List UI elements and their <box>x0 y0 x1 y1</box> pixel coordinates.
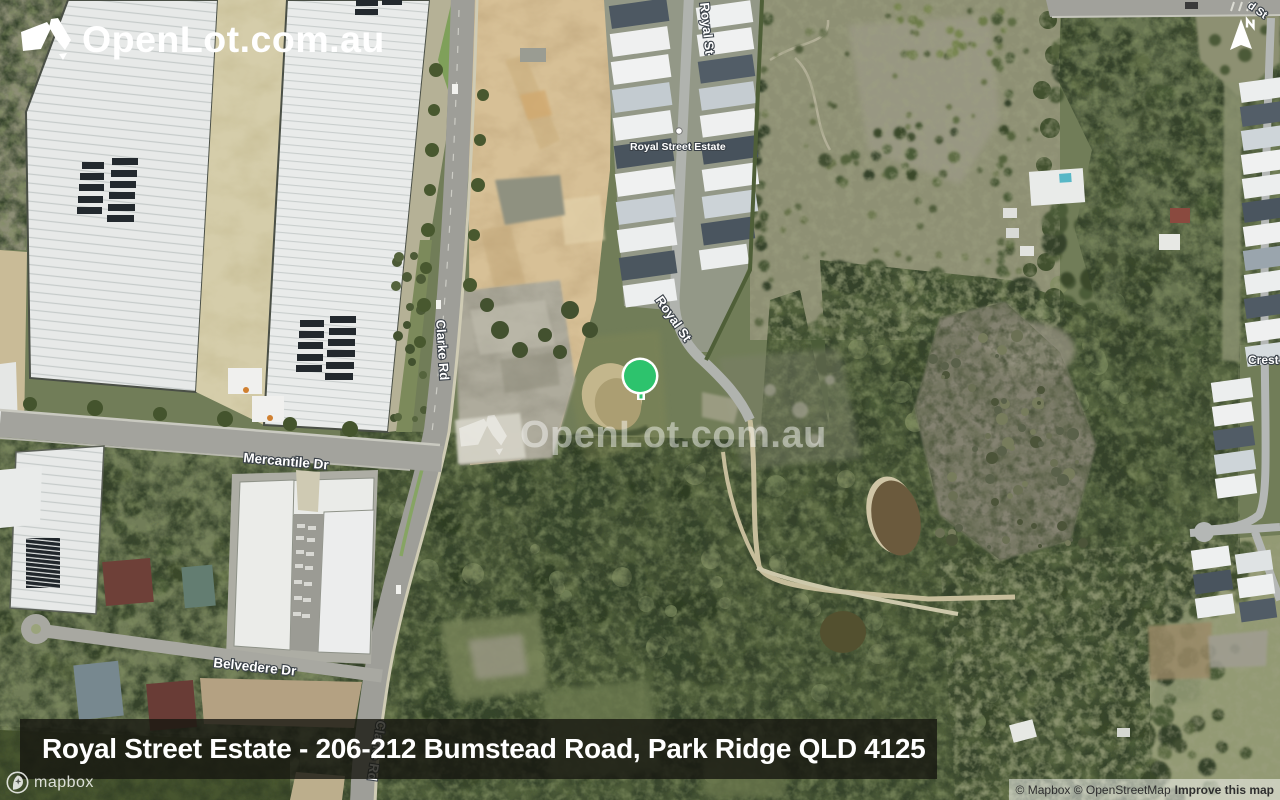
svg-text:Royal Street Estate: Royal Street Estate <box>630 141 726 153</box>
svg-text:Crest: Crest <box>1248 353 1279 367</box>
